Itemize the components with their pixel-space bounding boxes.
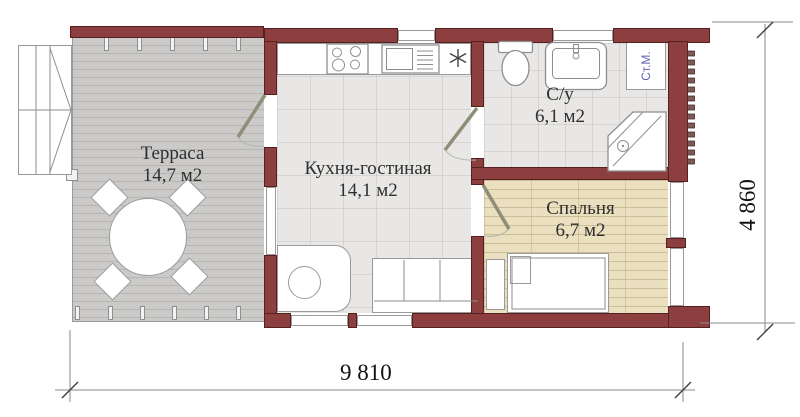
- wall-segment: [471, 236, 484, 315]
- terrace-name: Терраса: [100, 143, 245, 165]
- railing-baluster: [236, 37, 241, 51]
- island-sink-bowl: [288, 266, 321, 299]
- kitchen-area: 14,1 м2: [283, 180, 453, 202]
- exterior-stairs: [18, 45, 72, 175]
- wall-segment: [471, 167, 683, 180]
- wall-segment: [348, 313, 357, 328]
- pillow: [510, 256, 531, 284]
- window: [670, 248, 684, 306]
- window: [553, 30, 613, 41]
- railing-baluster: [236, 306, 241, 320]
- kitchen-counter: [277, 43, 471, 75]
- window: [398, 30, 435, 41]
- bathroom-name: С/у: [515, 84, 605, 106]
- railing-baluster: [172, 306, 177, 320]
- window: [357, 315, 412, 326]
- sofa: [372, 258, 480, 313]
- railing-baluster: [108, 306, 113, 320]
- washing-machine-label: Ст.М.: [639, 51, 653, 81]
- nightstand: [486, 259, 505, 310]
- railing-baluster: [140, 306, 145, 320]
- wall-segment: [668, 306, 710, 328]
- wall-segment: [264, 28, 398, 43]
- wall-segment: [264, 41, 277, 95]
- kitchen-label: Кухня-гостиная 14,1 м2: [283, 158, 453, 203]
- railing-baluster: [203, 37, 208, 51]
- railing-baluster: [75, 306, 80, 320]
- wall-segment: [264, 147, 277, 187]
- wall-segment: [412, 313, 710, 328]
- bathroom-label: С/у 6,1 м2: [515, 84, 605, 129]
- wall-segment: [264, 255, 277, 315]
- wall-segment: [666, 238, 686, 248]
- terrace-label: Терраса 14,7 м2: [100, 143, 245, 188]
- bathroom-area: 6,1 м2: [515, 106, 605, 128]
- railing-baluster: [204, 306, 209, 320]
- kitchen-name: Кухня-гостиная: [283, 158, 453, 180]
- railing-baluster: [104, 37, 109, 51]
- wall-segment: [435, 28, 553, 43]
- window: [266, 187, 276, 255]
- railing-baluster: [137, 37, 142, 51]
- wall-segment: [70, 26, 264, 38]
- window: [670, 182, 684, 238]
- round-table: [109, 198, 187, 276]
- railing-baluster: [170, 37, 175, 51]
- ladder-rungs: [688, 51, 695, 164]
- wall-segment: [613, 28, 710, 43]
- window: [291, 315, 348, 326]
- bedroom-name: Спальня: [533, 198, 628, 220]
- floor-plan: Ст.М.: [0, 0, 800, 417]
- terrace-area: 14,7 м2: [100, 165, 245, 187]
- dimension-depth-label: 4 860: [735, 179, 761, 231]
- wall-segment: [264, 313, 291, 328]
- wall-segment: [668, 41, 688, 182]
- dimension-width-label: 9 810: [340, 360, 392, 386]
- bedroom-label: Спальня 6,7 м2: [533, 198, 628, 243]
- washing-machine: Ст.М.: [626, 42, 666, 90]
- bedroom-area: 6,7 м2: [533, 220, 628, 242]
- wall-segment: [471, 41, 484, 107]
